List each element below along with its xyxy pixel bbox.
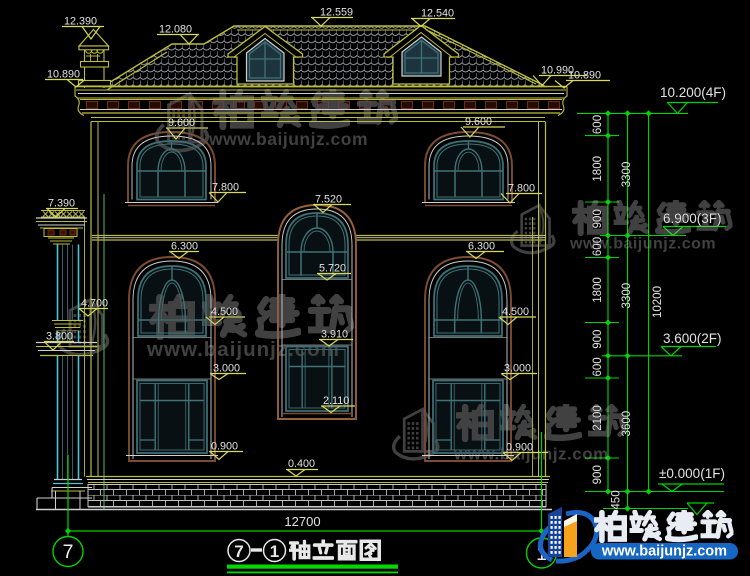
svg-text:3300: 3300 [621,162,633,188]
svg-text:10.890: 10.890 [47,69,80,81]
svg-text:1: 1 [270,542,279,561]
svg-text:12700: 12700 [284,514,320,529]
svg-text:6.300: 6.300 [171,241,198,253]
svg-text:3300: 3300 [621,283,633,309]
svg-text:3.000: 3.000 [504,363,531,375]
svg-text:900: 900 [592,330,604,349]
svg-text:www.baijunjz.com: www.baijunjz.com [569,236,716,253]
svg-text:0.900: 0.900 [211,441,238,453]
svg-text:7.520: 7.520 [315,194,342,206]
svg-text:1800: 1800 [592,156,604,182]
svg-text:www.baijunjz.com: www.baijunjz.com [601,544,727,560]
svg-text:5.720: 5.720 [319,263,346,275]
svg-text:10200: 10200 [652,286,664,318]
svg-text:450: 450 [611,490,623,509]
svg-text:1800: 1800 [592,277,604,303]
svg-text:12.080: 12.080 [159,24,192,36]
svg-text:600: 600 [592,357,604,376]
svg-text:7: 7 [234,542,243,561]
svg-text:9.600: 9.600 [465,116,492,128]
svg-text:0.400: 0.400 [288,458,315,470]
svg-text:3.600(2F): 3.600(2F) [663,331,722,346]
svg-text:www.baijunjz.com: www.baijunjz.com [208,129,368,149]
svg-text:600: 600 [592,115,604,134]
svg-text:900: 900 [592,465,604,484]
svg-text:www.baijunjz.com: www.baijunjz.com [453,445,609,464]
svg-text:www.baijunjz.com: www.baijunjz.com [146,338,340,361]
svg-text:7.390: 7.390 [48,198,75,210]
svg-text:2.110: 2.110 [323,395,349,407]
svg-text:6.300: 6.300 [468,241,495,253]
svg-text:7.800: 7.800 [212,182,239,194]
svg-text:10.890: 10.890 [568,70,601,82]
svg-text:10.200(4F): 10.200(4F) [660,85,726,100]
svg-text:7.800: 7.800 [508,183,535,195]
svg-text:7: 7 [63,541,74,563]
svg-text:12.540: 12.540 [421,8,454,20]
svg-text:±0.000(1F): ±0.000(1F) [659,466,725,481]
svg-text:4.500: 4.500 [502,306,529,318]
svg-text:3.000: 3.000 [213,363,240,375]
svg-text:12.559: 12.559 [320,7,353,19]
svg-text:12.390: 12.390 [64,16,97,28]
